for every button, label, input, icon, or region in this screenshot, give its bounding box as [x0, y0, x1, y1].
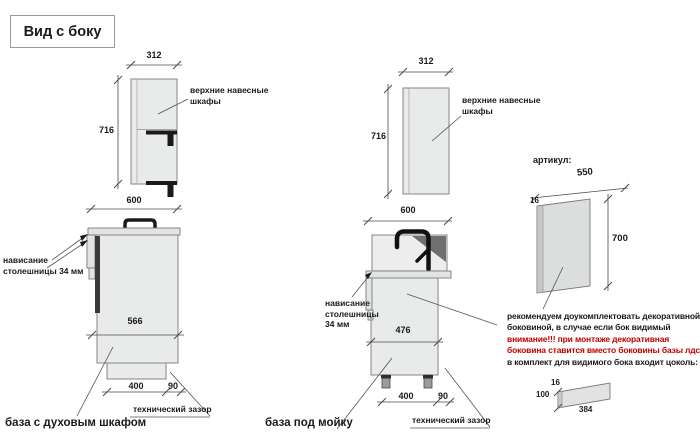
- d2-wall-width-dim: 312: [418, 56, 433, 66]
- view-title-box: Вид с боку: [10, 15, 115, 48]
- d1-countertop-handle-icon: [125, 220, 155, 228]
- d2-wall-height-dim: 716: [366, 131, 386, 141]
- d1-gap-label: технический зазор: [133, 404, 212, 415]
- d1-base-width-dim: 600: [126, 195, 141, 205]
- view-title-label: Вид с боку: [24, 24, 102, 40]
- note-line-3: в комплект для видимого бока входит цоко…: [507, 357, 700, 368]
- d1-carcass-dim: 566: [127, 316, 142, 326]
- technical-drawing-canvas: [0, 0, 700, 438]
- panel-thickness-dim: 16: [530, 196, 539, 205]
- d1-wall-height-dimension-line: [114, 75, 122, 189]
- panel-width-dim: 550: [577, 166, 594, 178]
- d1-base-width-dimension-line: [86, 205, 182, 213]
- d2-overhang-label: нависание столешницы 34 мм: [325, 298, 379, 330]
- d1-wall-handle-profile-icon: [146, 181, 177, 197]
- d1-caption-leader: [77, 347, 113, 416]
- panel-height-dim: 700: [612, 233, 628, 244]
- decor-panel-shape: [537, 199, 590, 293]
- note-line-1: рекомендуем доукомплектовать декоративно…: [507, 311, 700, 322]
- d2-carcass-dim: 476: [395, 325, 410, 335]
- d1-caption: база с духовым шкафом: [5, 417, 146, 429]
- plinth-thickness-dim: 16: [551, 378, 560, 387]
- d1-overhang-panel: [87, 235, 95, 268]
- d2-countertop: [366, 271, 451, 278]
- plinth-length-dim: 384: [579, 405, 592, 414]
- d2-gap-label: технический зазор: [412, 415, 491, 426]
- d1-countertop: [88, 228, 180, 235]
- d2-base-cabinet-shape: [366, 232, 451, 389]
- d1-base-cabinet-shape: [87, 220, 180, 379]
- d1-wall-cabinet-shape: [131, 79, 177, 197]
- d1-oven-door-edge: [95, 236, 100, 313]
- note-line-2: боковиной, в случае если бок видимый: [507, 322, 700, 333]
- d2-gap-dim: 90: [438, 391, 448, 401]
- panel-height-dimension-line: [604, 194, 612, 291]
- d2-wall-cabinet-body: [403, 88, 449, 194]
- d2-base-width-dim: 600: [400, 205, 415, 215]
- d2-base-width-dimension-line: [363, 217, 452, 225]
- d1-overhang-label: нависание столешницы 34 мм: [3, 255, 83, 276]
- d1-wall-width-dimension-line: [126, 61, 182, 69]
- d1-plinth-dim: 400: [128, 381, 143, 391]
- article-heading: артикул:: [533, 155, 571, 165]
- warning-line-2: боковина ставится вместо боковины базы л…: [507, 345, 700, 356]
- d2-wall-cabinet-shape: [403, 88, 449, 194]
- d2-wall-height-dimension-line: [384, 84, 392, 199]
- d2-adjustable-legs: [381, 375, 433, 388]
- d1-wall-height-dim: 716: [94, 125, 114, 135]
- d2-wall-width-dimension-line: [398, 68, 453, 76]
- d2-wall-label: верхние навесные шкафы: [462, 95, 541, 116]
- panel-width-dimension-line: [531, 184, 629, 202]
- d1-plinth: [107, 363, 166, 379]
- d1-wall-label: верхние навесные шкафы: [190, 85, 269, 106]
- panel-note-block: рекомендуем доукомплектовать декоративно…: [507, 311, 700, 368]
- d2-caption: база под мойку: [265, 417, 353, 429]
- plinth-height-dim: 100: [536, 390, 549, 399]
- d1-gap-dim: 90: [168, 381, 178, 391]
- d1-wall-width-dim: 312: [146, 50, 161, 60]
- d1-base-cabinet-body: [97, 235, 178, 363]
- d2-plinth-dim: 400: [398, 391, 413, 401]
- warning-line-1: внимание!!! при монтаже декоративная: [507, 334, 700, 345]
